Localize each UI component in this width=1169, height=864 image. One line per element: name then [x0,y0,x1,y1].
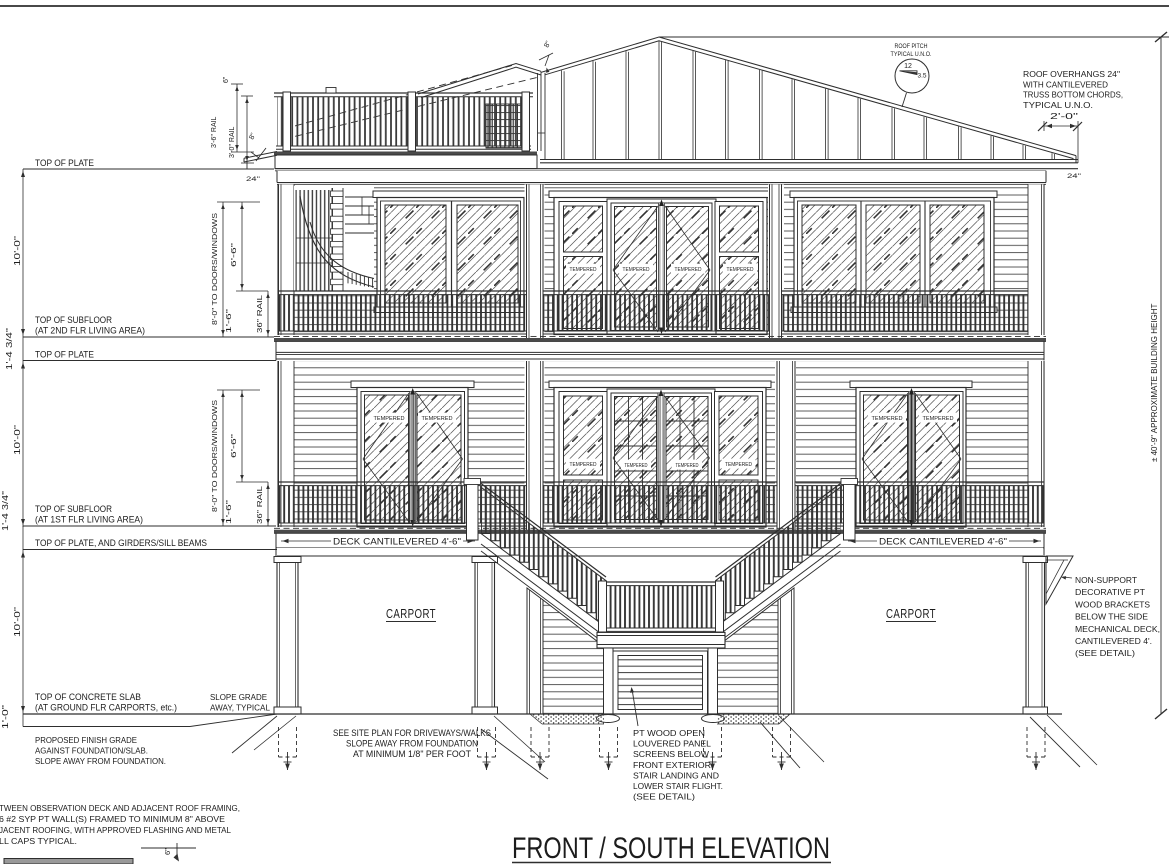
svg-text:TEMPERED: TEMPERED [570,462,597,468]
svg-text:TEMPERED: TEMPERED [422,416,453,422]
svg-text:DECK CANTILEVERED 4'-6": DECK CANTILEVERED 4'-6" [879,537,1007,547]
svg-text:TEMPERED: TEMPERED [923,416,954,422]
svg-text:TEMPERED: TEMPERED [725,462,752,468]
svg-text:36" RAIL: 36" RAIL [255,486,264,524]
svg-text:JACENT ROOFING, WITH APPROVED: JACENT ROOFING, WITH APPROVED FLASHING A… [0,825,231,835]
svg-text:LOWER STAIR FLIGHT.: LOWER STAIR FLIGHT. [633,781,723,791]
svg-text:TEMPERED: TEMPERED [374,416,405,422]
svg-text:WOOD BRACKETS: WOOD BRACKETS [1075,600,1151,609]
svg-text:ROOF OVERHANGS 24": ROOF OVERHANGS 24" [1023,70,1120,79]
svg-text:6 #2 SYP PT WALL(S) FRAMED TO: 6 #2 SYP PT WALL(S) FRAMED TO MINIMUM 8"… [0,814,225,824]
svg-text:LOUVERED PANEL: LOUVERED PANEL [633,739,711,749]
svg-text:6'-6": 6'-6" [229,433,238,458]
svg-text:SEE SITE PLAN FOR DRIVEWAYS/WA: SEE SITE PLAN FOR DRIVEWAYS/WALKS [333,728,491,738]
svg-text:FRONT EXTERIOR: FRONT EXTERIOR [633,760,711,770]
svg-text:TEMPERED: TEMPERED [625,463,648,469]
svg-text:(AT 2ND FLR LIVING AREA): (AT 2ND FLR LIVING AREA) [35,326,145,336]
svg-text:6'-6": 6'-6" [229,242,238,267]
svg-text:AWAY, TYPICAL: AWAY, TYPICAL [210,703,270,713]
svg-text:6": 6" [163,848,172,855]
svg-text:PROPOSED FINISH GRADE: PROPOSED FINISH GRADE [35,735,137,745]
svg-text:10'-0": 10'-0" [12,236,22,266]
svg-text:TEMPERED: TEMPERED [727,267,754,273]
svg-text:SCREENS BELOW: SCREENS BELOW [633,749,709,759]
svg-text:2'-0": 2'-0" [1050,112,1078,121]
svg-text:TEMPERED: TEMPERED [623,267,650,273]
svg-text:TOP OF SUBFLOOR: TOP OF SUBFLOOR [35,315,112,325]
svg-text:24": 24" [1067,173,1081,180]
svg-text:AT MINIMUM 1/8" PER FOOT: AT MINIMUM 1/8" PER FOOT [353,749,471,759]
svg-text:CARPORT: CARPORT [386,607,436,621]
svg-text:3'-6" RAIL: 3'-6" RAIL [211,116,218,148]
svg-text:6": 6" [223,76,230,83]
svg-text:DECK CANTILEVERED 4'-6": DECK CANTILEVERED 4'-6" [333,537,461,547]
svg-text:1'-0": 1'-0" [1,705,10,729]
svg-text:(SEE DETAIL): (SEE DETAIL) [633,792,695,802]
svg-text:± 40'-9" APPROXIMATE BUILDING: ± 40'-9" APPROXIMATE BUILDING HEIGHT [1150,303,1159,462]
svg-text:STAIR LANDING AND: STAIR LANDING AND [633,770,719,780]
svg-text:MECHANICAL DECK,: MECHANICAL DECK, [1075,625,1160,634]
svg-text:CANTILEVERED 4'.: CANTILEVERED 4'. [1075,637,1152,646]
svg-text:(AT 1ST FLR LIVING AREA): (AT 1ST FLR LIVING AREA) [35,515,143,525]
svg-text:TRUSS BOTTOM CHORDS,: TRUSS BOTTOM CHORDS, [1023,91,1123,100]
svg-text:SLOPE AWAY FROM FOUNDATION: SLOPE AWAY FROM FOUNDATION [346,739,478,749]
svg-text:LL CAPS TYPICAL.: LL CAPS TYPICAL. [0,836,77,846]
svg-text:TEMPERED: TEMPERED [676,463,699,469]
svg-text:TEMPERED: TEMPERED [570,267,597,273]
svg-text:36" RAIL: 36" RAIL [255,295,264,333]
svg-text:1'-4 3/4": 1'-4 3/4" [4,328,14,370]
svg-text:TEMPERED: TEMPERED [872,416,903,422]
svg-text:8'-0" TO DOORS/WINDOWS: 8'-0" TO DOORS/WINDOWS [210,213,219,325]
svg-text:8'-0" TO DOORS/WINDOWS: 8'-0" TO DOORS/WINDOWS [210,400,219,512]
svg-text:FRONT / SOUTH ELEVATION: FRONT / SOUTH ELEVATION [512,832,830,864]
svg-text:SLOPE GRADE: SLOPE GRADE [210,692,267,702]
svg-text:TEMPERED: TEMPERED [675,267,702,273]
svg-text:BELOW THE SIDE: BELOW THE SIDE [1075,613,1149,622]
svg-text:1'-4 3/4": 1'-4 3/4" [1,491,10,531]
svg-text:AGAINST FOUNDATION/SLAB.: AGAINST FOUNDATION/SLAB. [35,746,148,756]
svg-text:TOP OF SUBFLOOR: TOP OF SUBFLOOR [35,504,112,514]
svg-text:CARPORT: CARPORT [886,607,936,621]
svg-text:NON-SUPPORT: NON-SUPPORT [1075,576,1137,585]
svg-text:WITH CANTILEVERED: WITH CANTILEVERED [1023,80,1108,89]
svg-text:TOP OF PLATE: TOP OF PLATE [35,350,94,360]
svg-text:1'-6": 1'-6" [224,499,233,524]
svg-text:TOP OF PLATE: TOP OF PLATE [35,158,94,168]
svg-text:DECORATIVE PT: DECORATIVE PT [1075,588,1145,597]
svg-text:10'-0": 10'-0" [12,425,22,455]
svg-text:TOP OF PLATE, AND GIRDERS/SILL: TOP OF PLATE, AND GIRDERS/SILL BEAMS [35,538,207,548]
svg-text:SLOPE AWAY FROM FOUNDATION.: SLOPE AWAY FROM FOUNDATION. [35,756,166,766]
svg-text:3'-0" RAIL: 3'-0" RAIL [229,126,236,158]
svg-text:3.5: 3.5 [918,73,927,80]
svg-text:1'-6": 1'-6" [224,308,233,333]
svg-text:10'-0": 10'-0" [12,607,22,637]
svg-text:24": 24" [246,176,260,183]
svg-text:(AT GROUND FLR CARPORTS, etc.): (AT GROUND FLR CARPORTS, etc.) [35,703,177,713]
svg-text:(SEE DETAIL): (SEE DETAIL) [1075,649,1135,658]
svg-text:TWEEN OBSERVATION DECK AND ADJ: TWEEN OBSERVATION DECK AND ADJACENT ROOF… [0,803,240,813]
svg-text:ROOF PITCH: ROOF PITCH [895,43,928,50]
svg-text:PT WOOD OPEN: PT WOOD OPEN [633,728,705,738]
svg-text:TYPICAL U.N.O.: TYPICAL U.N.O. [1023,101,1093,110]
svg-text:12: 12 [904,63,912,70]
svg-text:TYPICAL U.N.O.: TYPICAL U.N.O. [891,51,932,58]
svg-text:TOP OF CONCRETE SLAB: TOP OF CONCRETE SLAB [35,692,141,702]
